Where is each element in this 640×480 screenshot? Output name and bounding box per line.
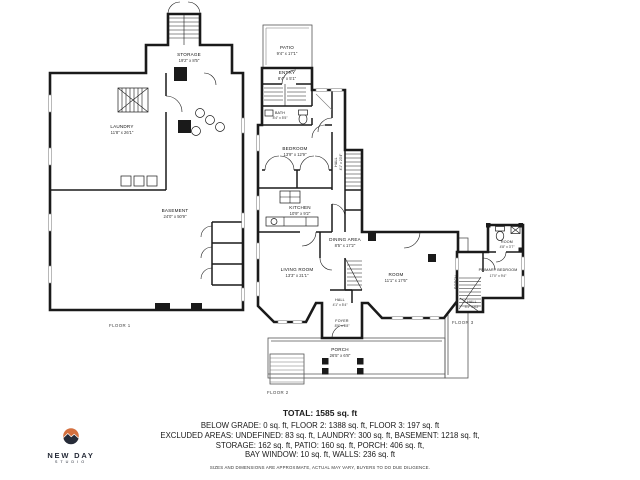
newday-studio-logo: NEW DAY STUDIO <box>40 427 102 464</box>
logo-title: NEW DAY <box>40 451 102 460</box>
room-label-hall-lower: HALL <box>335 298 345 302</box>
room-label-primary-bedroom: PRIMARY BEDROOM <box>479 268 518 272</box>
room-label-porch: PORCH <box>331 347 349 352</box>
room-dims-hall-upper: 4'1" x 23'4" <box>339 153 343 171</box>
room-label-storage: STORAGE <box>177 52 201 57</box>
floor3-caption: FLOOR 3 <box>452 320 474 325</box>
room-label-laundry: LAUNDRY <box>110 124 133 129</box>
room-label-room2: ROOM <box>388 272 403 277</box>
room-label-bath: BATH <box>275 111 285 115</box>
room-dims-foyer: 8'5" x 6'8" <box>335 324 351 328</box>
room-label-kitchen: KITCHEN <box>289 205 311 210</box>
room-label-hall3: HALL <box>467 300 477 304</box>
room-dims-room3: 4'8" x 3'7" <box>500 245 516 249</box>
room-dims-hall-lower: 4'1" x 5'4" <box>333 303 349 307</box>
room-label-patio: PATIO <box>280 45 294 50</box>
summary-disclaimer: SIZES AND DIMENSIONS ARE APPROXIMATE, AC… <box>0 465 640 470</box>
room-dims-basement: 24'0" x 50'9" <box>164 214 187 219</box>
room-dims-laundry: 11'8" x 26'1" <box>111 130 134 135</box>
summary-total: TOTAL: 1585 sq. ft <box>0 408 640 418</box>
room-dims-hall3: 3'1" x 4'2" <box>465 305 481 309</box>
logo-subtitle: STUDIO <box>40 460 102 464</box>
room-dims-porch: 26'5" x 6'8" <box>330 353 351 358</box>
floor2-plan: PATIO 9'4" x 17'1" ENTRY 8'4" x 5'1" BAT… <box>257 25 468 395</box>
sun-icon <box>61 427 81 450</box>
room-dims-storage: 19'2" x 8'5" <box>179 58 200 63</box>
room-label-entry: ENTRY <box>279 70 296 75</box>
room-label-living: LIVING ROOM <box>281 267 314 272</box>
room-label-room3: ROOM <box>501 240 513 244</box>
room-label-foyer: FOYER <box>335 319 349 323</box>
floor1-caption: FLOOR 1 <box>109 323 131 328</box>
room-dims-living: 13'3" x 21'1" <box>286 273 309 278</box>
room-label-basement: BASEMENT <box>162 208 189 213</box>
floor-plan-page: STORAGE 19'2" x 8'5" LAUNDRY 11'8" x 26'… <box>0 0 640 480</box>
floor2-caption: FLOOR 2 <box>267 390 289 395</box>
room-dims-kitchen: 10'9" x 9'2" <box>290 211 311 216</box>
room-label-dining: DINING AREA <box>329 237 362 242</box>
room-dims-bedroom: 13'9" x 12'9" <box>284 152 307 157</box>
room-dims-primary-bedroom: 17'0" x 9'4" <box>490 274 508 278</box>
room-dims-bath: 8'4" x 5'5" <box>273 116 289 120</box>
room-dims-dining: 8'5" x 17'2" <box>335 243 356 248</box>
floor1-plan: STORAGE 19'2" x 8'5" LAUNDRY 11'8" x 26'… <box>49 2 245 328</box>
room-dims-patio: 9'4" x 17'1" <box>277 51 298 56</box>
room-label-bedroom: BEDROOM <box>282 146 307 151</box>
room-dims-room2: 11'1" x 17'6" <box>385 278 408 283</box>
room-dims-entry: 8'4" x 5'1" <box>278 76 297 81</box>
room-label-hall-upper: HALL <box>334 157 338 167</box>
